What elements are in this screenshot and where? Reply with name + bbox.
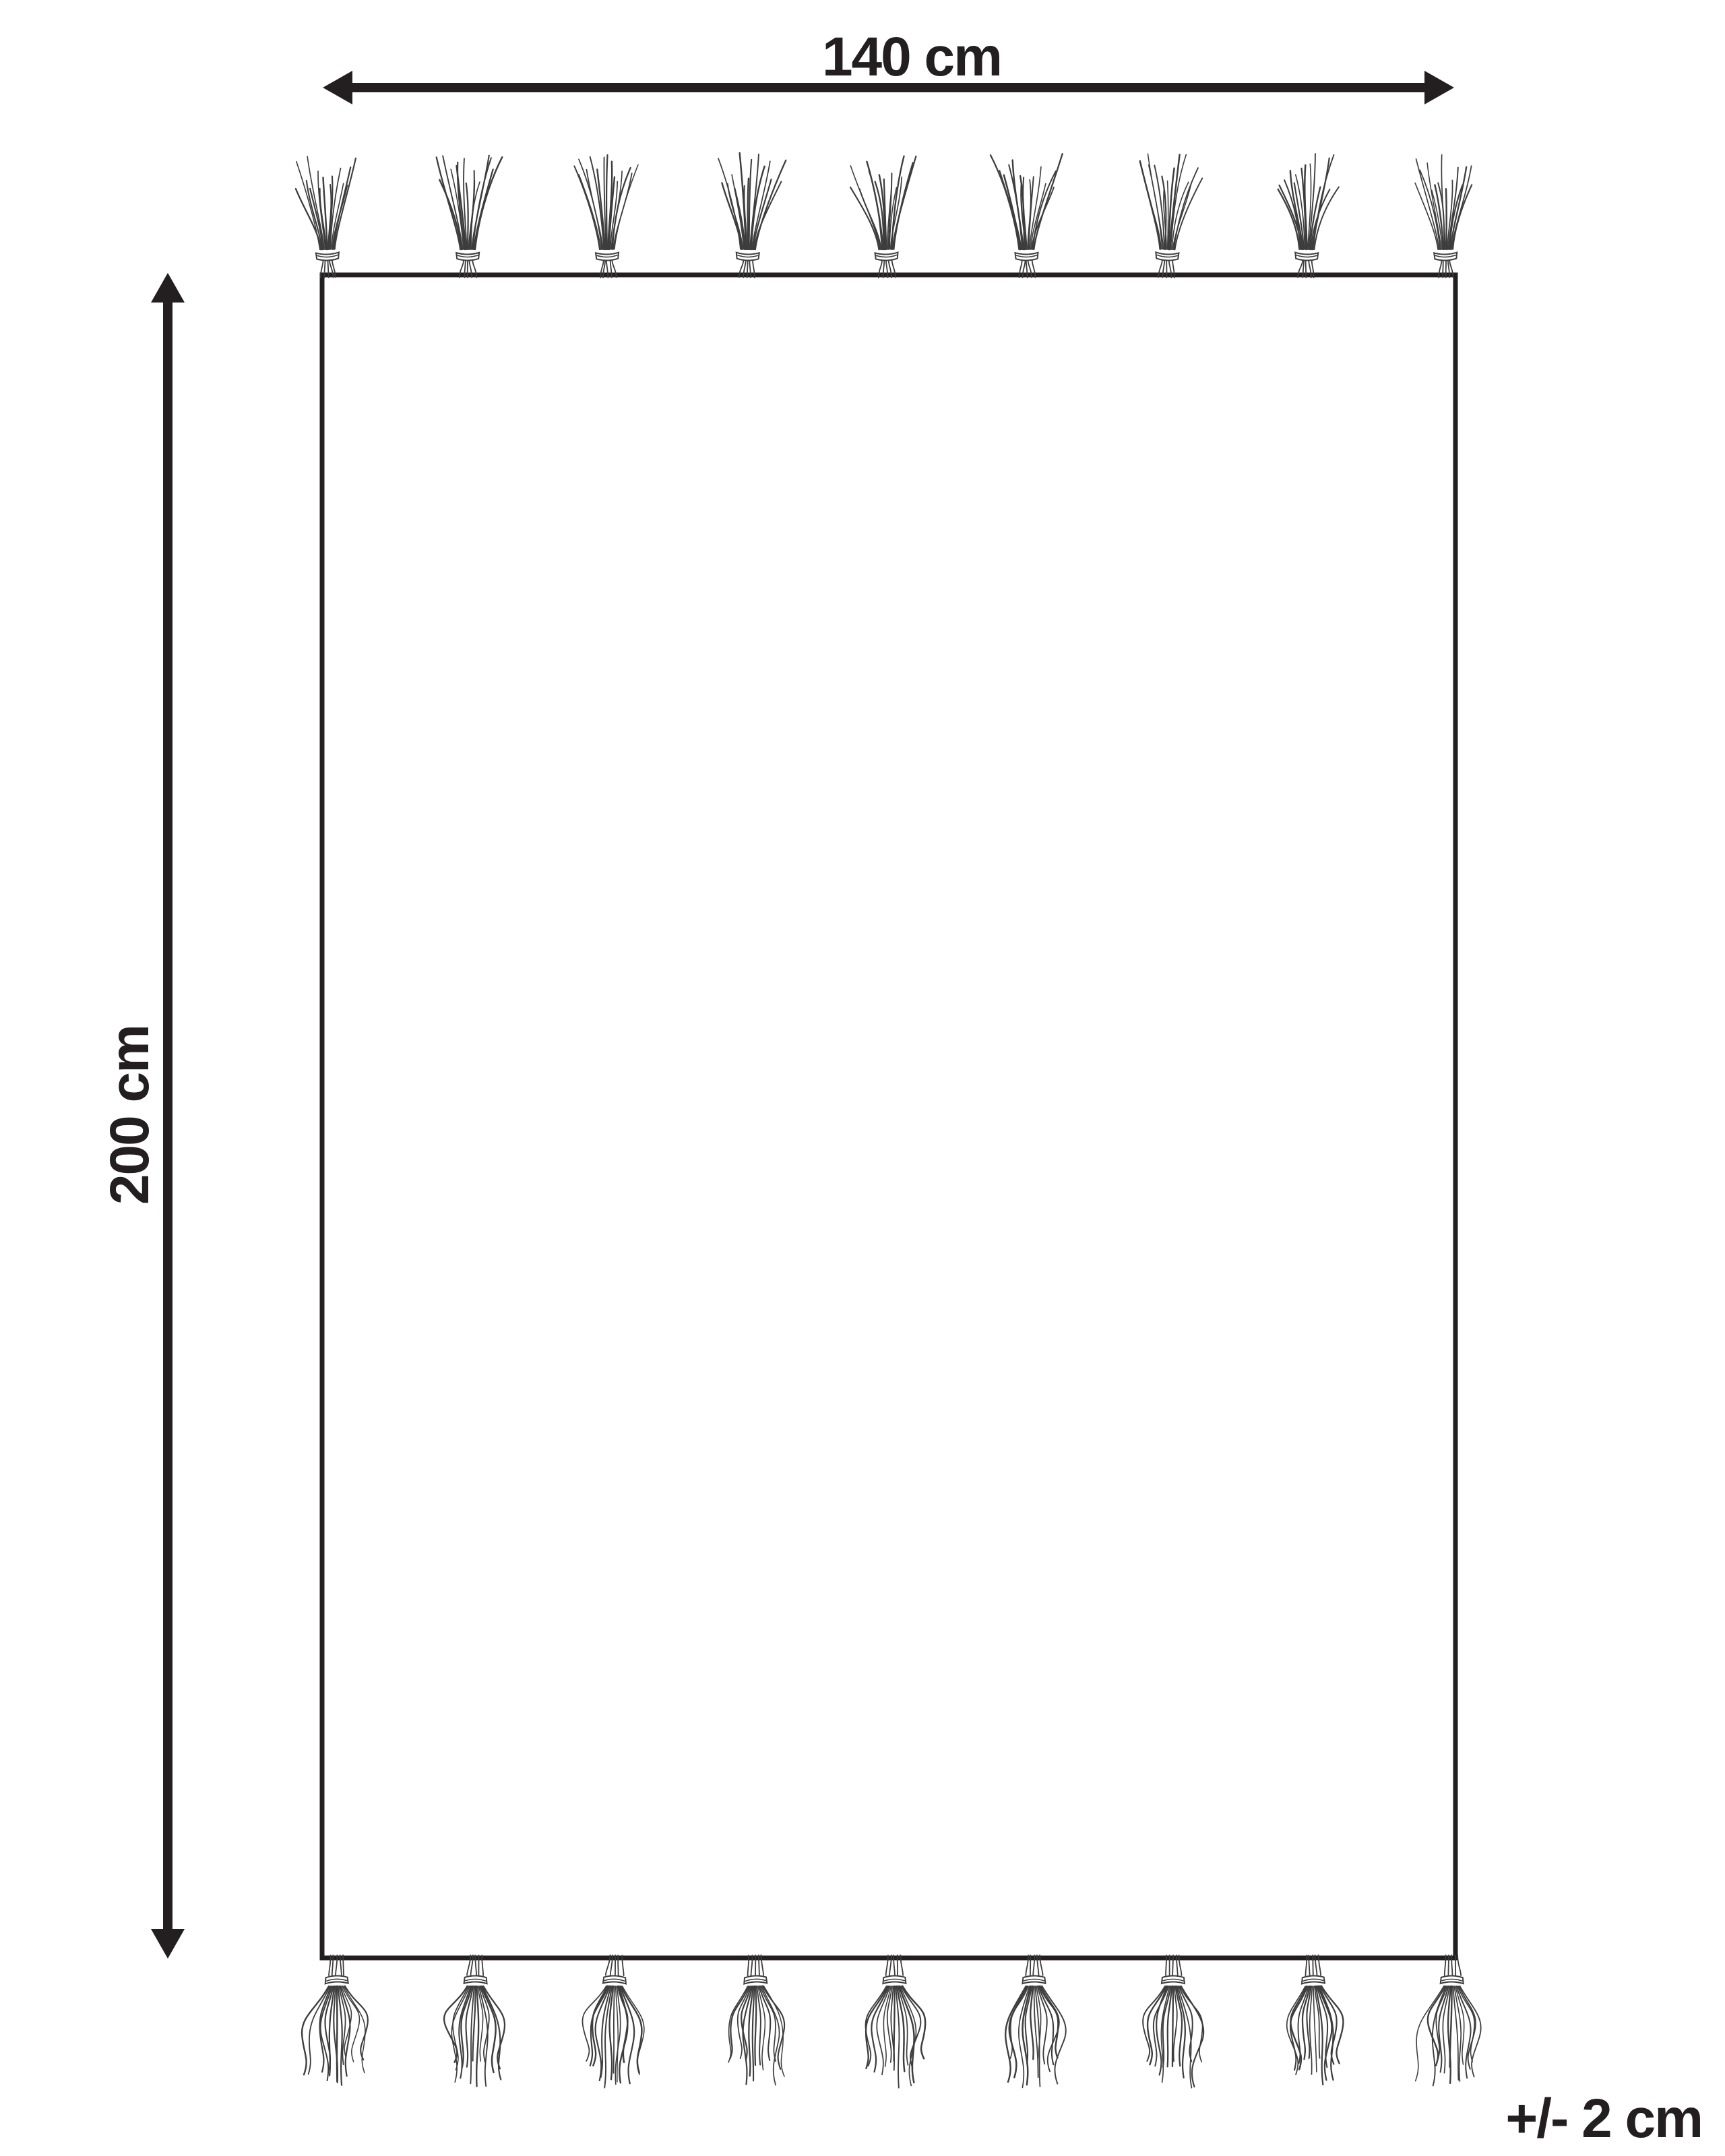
tassel xyxy=(1285,1955,1345,2086)
tassel-strand xyxy=(1445,261,1446,278)
tassel-strand xyxy=(1166,261,1167,278)
tassel-strand xyxy=(1303,1979,1323,1981)
tassel-strand xyxy=(468,261,468,278)
height-arrow-bottom-head xyxy=(151,1929,185,1959)
bottom-fringe xyxy=(301,1955,1482,2089)
tassel-strand xyxy=(331,167,353,249)
tassel-strand xyxy=(328,261,329,278)
width-label: 140 cm xyxy=(822,26,1001,88)
tassel-strand xyxy=(1017,255,1037,257)
tassel-strand xyxy=(458,255,478,257)
tassel-strand xyxy=(890,156,918,249)
height-label: 200 cm xyxy=(99,1025,160,1205)
tassel xyxy=(1143,1955,1204,2088)
tassel-strand xyxy=(1442,1979,1462,1981)
tassel-strand xyxy=(466,1979,486,1981)
tassel-strand xyxy=(1435,255,1455,257)
tassel-strand xyxy=(755,1955,756,1975)
tolerance-label: +/- 2 cm xyxy=(1505,2088,1702,2149)
tassel xyxy=(1414,154,1474,278)
tassel-strand xyxy=(1024,1979,1044,1981)
tassel-strand xyxy=(893,1986,896,2061)
tassel-strand xyxy=(1455,1955,1456,1975)
tassel-strand xyxy=(759,1955,759,1975)
tassel-strand xyxy=(877,255,897,257)
width-arrow-left-head xyxy=(323,71,352,104)
tassel-strand xyxy=(889,156,906,249)
tassel-strand xyxy=(604,1979,625,1981)
height-arrow-top-head xyxy=(151,273,185,303)
tassel-strand xyxy=(476,1986,479,2087)
tassel-strand xyxy=(459,1986,471,2079)
width-arrow-right-head xyxy=(1424,71,1454,104)
tassel-strand xyxy=(745,1979,765,1981)
tassel-strand xyxy=(1451,185,1474,249)
tassel xyxy=(574,154,640,278)
tassel xyxy=(1416,1955,1482,2086)
tassel xyxy=(716,153,786,278)
tassel-strand xyxy=(1163,1979,1183,1981)
tassel-strand xyxy=(1290,1986,1309,2070)
tassel-strand xyxy=(738,255,758,257)
tassel-strand xyxy=(327,1979,347,1981)
tassel xyxy=(437,156,503,278)
tassel-strand xyxy=(1305,261,1306,278)
tassel xyxy=(865,1955,926,2089)
tassel-strand xyxy=(1175,177,1203,250)
tassel-strand xyxy=(343,1955,344,1975)
tassel-strand xyxy=(1166,1955,1166,1975)
tassel-strand xyxy=(757,1986,762,2065)
tassel-strand xyxy=(991,155,1019,250)
tassel-strand xyxy=(1313,1955,1313,1975)
rug-outline xyxy=(322,275,1455,1958)
tassel-strand xyxy=(574,166,600,250)
tassel-strand xyxy=(1457,1955,1461,1975)
tassel-strand xyxy=(317,255,338,257)
tassel xyxy=(725,1955,786,2087)
tassel-strand xyxy=(1172,1955,1173,1975)
tassel xyxy=(301,1955,369,2086)
tassel-strand xyxy=(612,1986,616,2073)
tassel-strand xyxy=(1030,1955,1031,1975)
tassel xyxy=(294,155,359,278)
tassel xyxy=(991,154,1064,278)
tassel xyxy=(1136,153,1203,278)
tassel-strand xyxy=(1157,255,1177,257)
tassel-strand xyxy=(884,1979,904,1981)
tassel xyxy=(1276,153,1340,278)
top-fringe xyxy=(294,153,1474,279)
tassel-strand xyxy=(597,255,617,257)
tassel-strand xyxy=(1174,1986,1177,2061)
tassel-strand xyxy=(747,261,748,278)
rug-size-diagram: 140 cm 200 cm +/- 2 cm xyxy=(0,0,1725,2156)
tassel-strand xyxy=(615,1955,615,1975)
tassel-strand xyxy=(1452,1986,1459,2080)
tassel-strand xyxy=(1443,261,1444,278)
tassel-strand xyxy=(1448,1955,1449,1975)
tassel xyxy=(850,156,920,278)
tassel-strand xyxy=(1030,1986,1034,2059)
tassel-strand xyxy=(1296,255,1317,257)
tassel xyxy=(1005,1955,1067,2087)
tassel xyxy=(581,1955,646,2089)
tassel xyxy=(443,1955,505,2087)
